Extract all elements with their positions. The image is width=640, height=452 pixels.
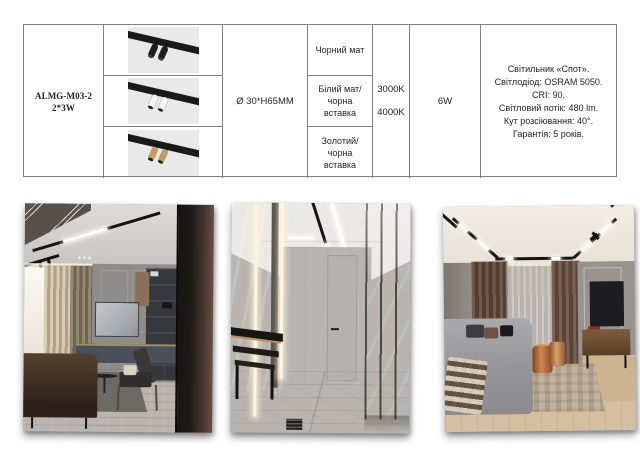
door-handle [331, 328, 339, 330]
floor-vent [286, 419, 302, 430]
black-console [230, 327, 282, 406]
power-cell: 6W [410, 25, 481, 178]
console-leg [235, 365, 238, 399]
leather-sofa [23, 353, 98, 418]
finish-cell-white: Білий мат/чорна вставка [308, 76, 373, 127]
recessed-linear-light [288, 237, 314, 239]
color-temp-3000k: 3000K [377, 84, 404, 96]
product-spec-table: ALMG-M03-2 2*3W [23, 24, 617, 177]
description-line: Світловий потік: 480 lm. [499, 102, 598, 115]
lit-track-segment [551, 257, 560, 260]
sofa-leg [85, 418, 87, 429]
description-line: Гарантія: 5 років. [513, 128, 584, 141]
wall-tv [590, 281, 624, 326]
render-cell-gold [104, 127, 223, 178]
console-leg [270, 369, 273, 399]
wardrobe-reflection [365, 203, 411, 283]
product-render-black-icon [128, 27, 199, 73]
power-value: 6W [438, 96, 452, 108]
sofa-pillow [484, 327, 498, 338]
dimensions-value: Ø 30*H65MM [236, 96, 294, 108]
recessed-spots [79, 257, 91, 259]
finish-label: Золотий/чорна вставка [315, 135, 365, 171]
wall-tv [95, 302, 139, 337]
product-render-gold-icon [128, 130, 199, 176]
color-temp-4000k: 4000K [377, 107, 404, 119]
console-shelf [235, 360, 275, 370]
dimensions-cell: Ø 30*H65MM [223, 25, 308, 178]
sideboard-leg [624, 355, 626, 368]
armchair-frame [117, 385, 158, 411]
photo-living-room-magnetic-track [443, 205, 636, 432]
spec-sheet-page: ALMG-M03-2 2*3W [0, 0, 640, 452]
sofa-pillow [500, 325, 513, 336]
product-code: ALMG-M03-2 2*3W [24, 90, 103, 114]
description-line: Світлодіод: OSRAM 5050. CRI: 90. [485, 76, 612, 102]
wood-cabinet [135, 272, 149, 306]
wardrobe-floor-shadow [364, 415, 409, 433]
description-cell: Світильник «Спот». Світлодіод: OSRAM 505… [481, 25, 616, 178]
description-line: Світильник «Спот». [508, 63, 590, 76]
product-code-cell: ALMG-M03-2 2*3W [24, 25, 104, 178]
render-cell-black [104, 25, 223, 76]
photo-hallway [230, 202, 411, 433]
finish-label: Білий мат/чорна вставка [315, 83, 365, 119]
sofa-leg [31, 417, 33, 428]
sofa-pillow [466, 325, 484, 338]
finish-label: Чорний мат [316, 44, 365, 56]
color-temperature-cell: 3000K 4000K [373, 25, 410, 178]
copper-side-table [549, 342, 565, 366]
sideboard [582, 329, 630, 356]
photo-living-room-office [23, 203, 214, 433]
console-shelf [233, 345, 279, 357]
sideboard-leg [586, 355, 588, 368]
render-cell-white [104, 76, 223, 127]
coffee-table-leg [103, 377, 105, 393]
finish-cell-black: Чорний мат [308, 25, 373, 76]
product-render-white-icon [128, 78, 199, 124]
description-line: Кут розсіювання: 40°. [504, 115, 593, 128]
door [327, 255, 358, 381]
finish-cell-gold: Золотий/чорна вставка [308, 127, 373, 178]
shelf-object [150, 271, 158, 276]
armchair-pillow [124, 365, 137, 375]
lit-track-segment [505, 257, 513, 260]
shelf-object [162, 302, 172, 308]
foreground-wall-edge [175, 205, 214, 433]
plaid-throw [443, 356, 488, 415]
